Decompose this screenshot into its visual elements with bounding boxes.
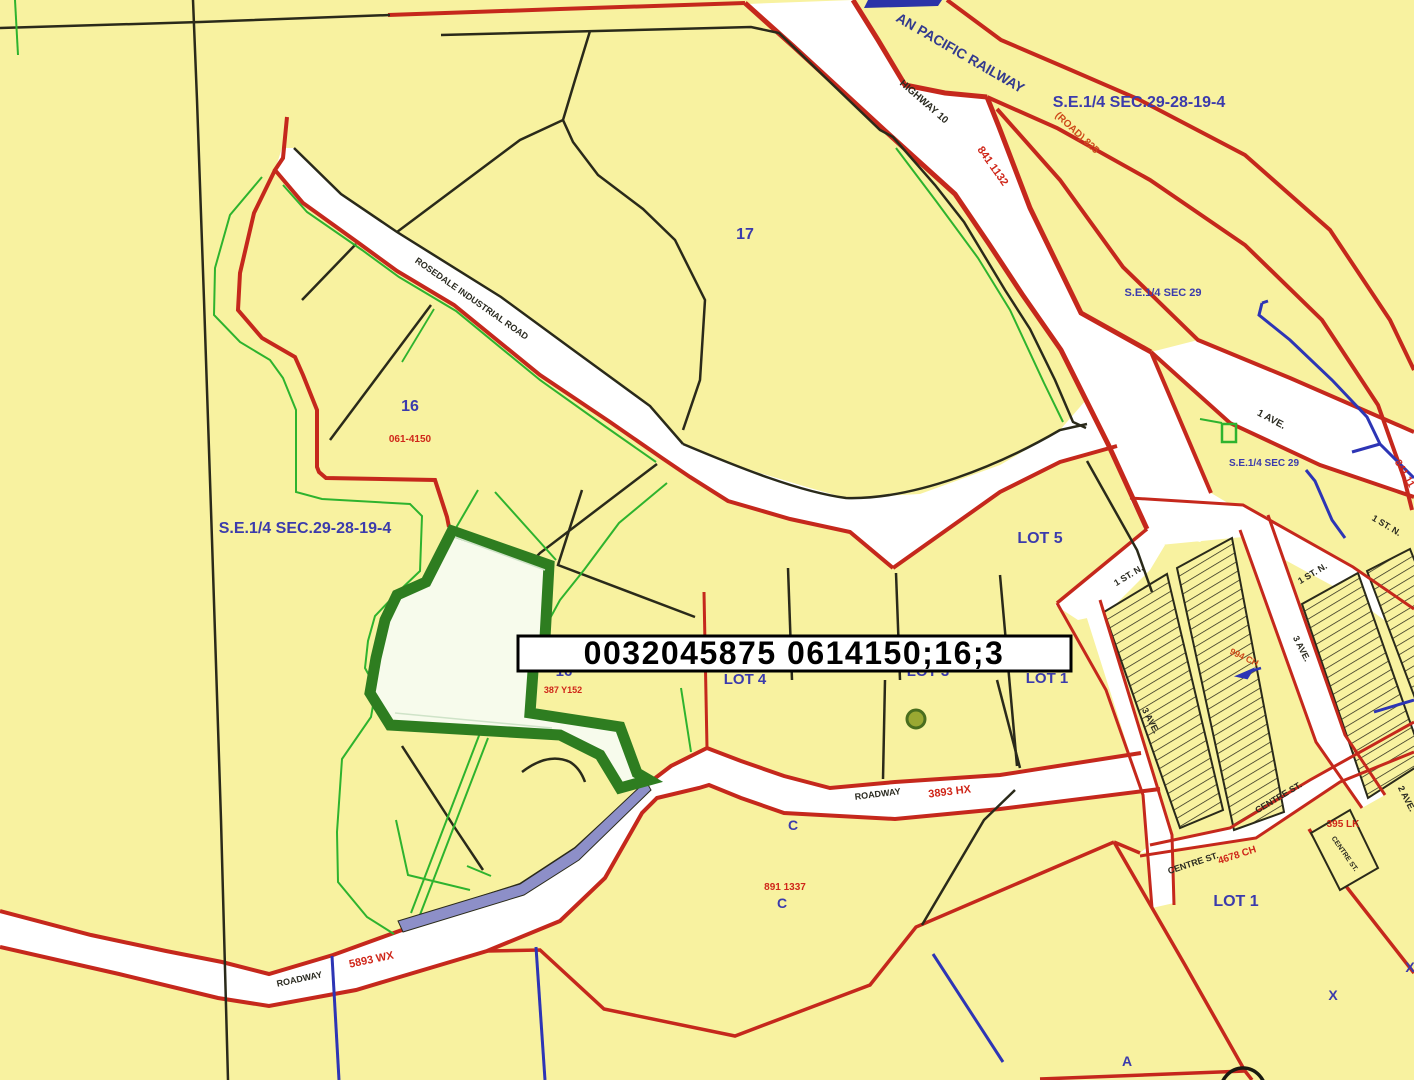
svg-text:LOT 5: LOT 5 [1017,530,1062,547]
svg-text:395 LK: 395 LK [1327,819,1361,830]
svg-text:S.E.1/4 SEC 29: S.E.1/4 SEC 29 [1124,287,1201,299]
svg-text:X: X [1405,959,1414,975]
svg-text:LOT 4: LOT 4 [724,671,767,688]
svg-text:A: A [1122,1053,1132,1069]
svg-text:X: X [1328,987,1338,1003]
svg-text:LOT 1: LOT 1 [1213,893,1258,910]
svg-text:891 1337: 891 1337 [764,882,806,893]
svg-text:0032045875 0614150;16;3: 0032045875 0614150;16;3 [584,635,1005,671]
svg-text:061-4150: 061-4150 [389,434,432,445]
svg-text:387 Y152: 387 Y152 [544,685,582,695]
svg-text:S.E.1/4 SEC.29-28-19-4: S.E.1/4 SEC.29-28-19-4 [1053,94,1226,111]
svg-text:C: C [777,895,787,911]
svg-text:LOT 1: LOT 1 [1026,670,1069,687]
svg-text:16: 16 [401,398,419,415]
svg-text:17: 17 [736,226,754,243]
svg-text:S.E.1/4 SEC.29-28-19-4: S.E.1/4 SEC.29-28-19-4 [219,520,392,537]
svg-text:S.E.1/4 SEC 29: S.E.1/4 SEC 29 [1229,458,1299,469]
svg-text:C: C [788,817,798,833]
